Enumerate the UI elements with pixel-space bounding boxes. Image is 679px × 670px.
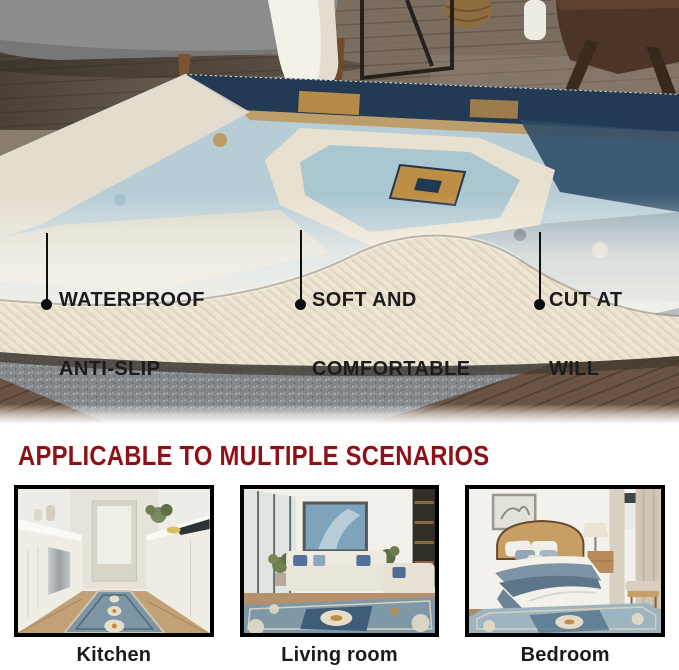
kitchen-thumbnail-image: [18, 489, 210, 633]
section-heading: APPLICABLE TO MULTIPLE SCENARIOS: [18, 440, 580, 471]
living-room-thumbnail-frame: [240, 485, 440, 637]
scenario-kitchen: Kitchen: [14, 485, 214, 667]
living-room-label: Living room: [240, 644, 440, 667]
callout-text-line2: COMFORTABLE: [312, 358, 470, 381]
kitchen-thumbnail-frame: [14, 485, 214, 637]
scenario-bedroom: Bedroom: [465, 485, 665, 667]
scenario-thumbnails: Kitchen: [14, 485, 665, 667]
callout-dot: [295, 299, 306, 310]
vase: [524, 0, 546, 40]
callout-text-line1: WATERPROOF: [59, 289, 205, 312]
bedroom-thumbnail-image: [469, 489, 661, 633]
bedroom-label: Bedroom: [465, 644, 665, 667]
callout-dot: [534, 299, 545, 310]
living-room-thumbnail-image: [244, 489, 436, 633]
kitchen-label: Kitchen: [14, 644, 214, 667]
callout-line: [539, 232, 541, 301]
scenario-living-room: Living room: [240, 485, 440, 667]
product-photo: WATERPROOF ANTI-SLIP SOFT AND COMFORTABL…: [0, 0, 679, 424]
callout-dot: [41, 299, 52, 310]
product-infographic: { "photo": { "callouts": [ {"line1": "WA…: [0, 0, 679, 670]
callout-text-line1: CUT AT: [549, 289, 623, 312]
callout-text-line2: ANTI-SLIP: [59, 358, 205, 381]
bedroom-thumbnail-frame: [465, 485, 665, 637]
callout-line: [300, 230, 302, 301]
callout-text-line2: WILL: [549, 358, 623, 381]
callout-line: [46, 233, 48, 301]
callout-text-line1: SOFT AND: [312, 289, 470, 312]
